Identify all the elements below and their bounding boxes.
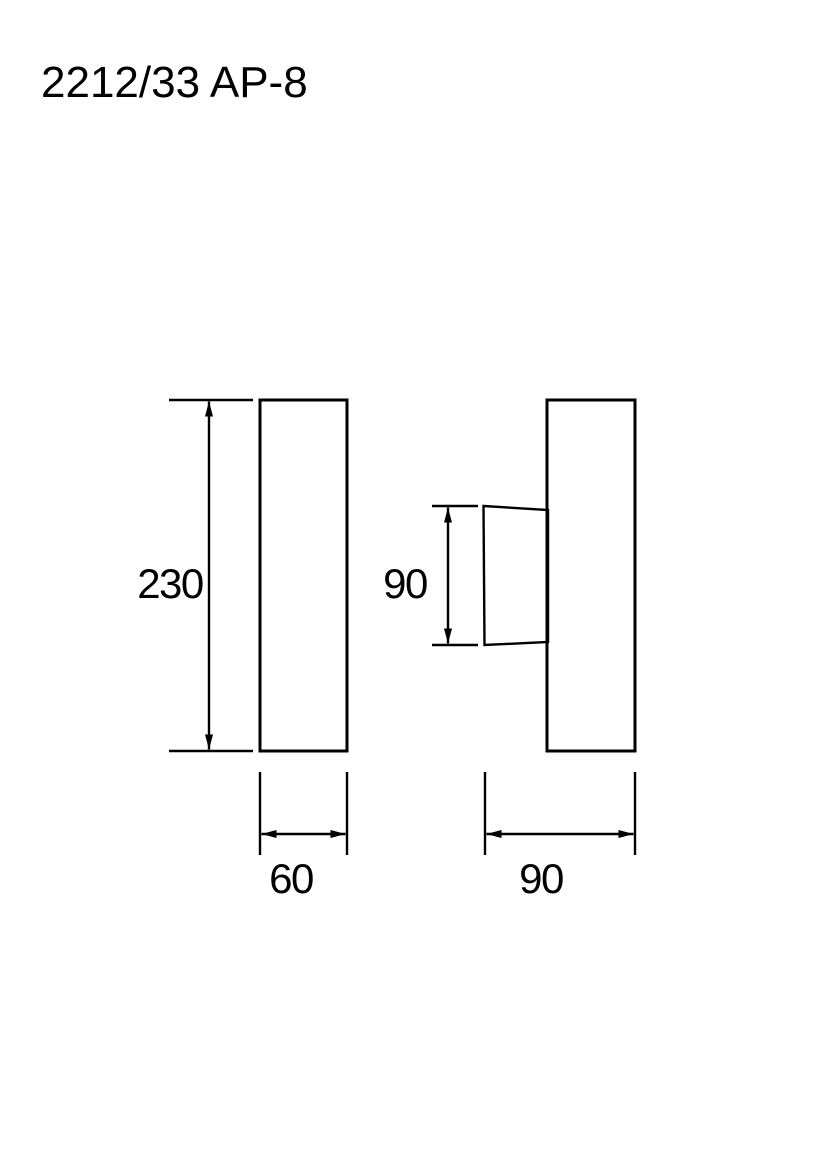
front-width-dim-label: 60 xyxy=(269,855,313,902)
front-view-outline xyxy=(260,400,347,751)
product-title: 2212/33 AP-8 xyxy=(41,58,308,107)
side-view-outline xyxy=(547,400,635,751)
dimension-drawing: 2212/33 AP-8 230 60 90 90 xyxy=(0,0,827,1166)
shade-outline xyxy=(484,506,549,645)
drawing-sheet: 2212/33 AP-8 230 60 90 90 xyxy=(0,0,827,1166)
shade-height-dim-label: 90 xyxy=(383,560,427,607)
front-height-dim-label: 230 xyxy=(137,560,203,607)
side-depth-dim-label: 90 xyxy=(519,855,563,902)
